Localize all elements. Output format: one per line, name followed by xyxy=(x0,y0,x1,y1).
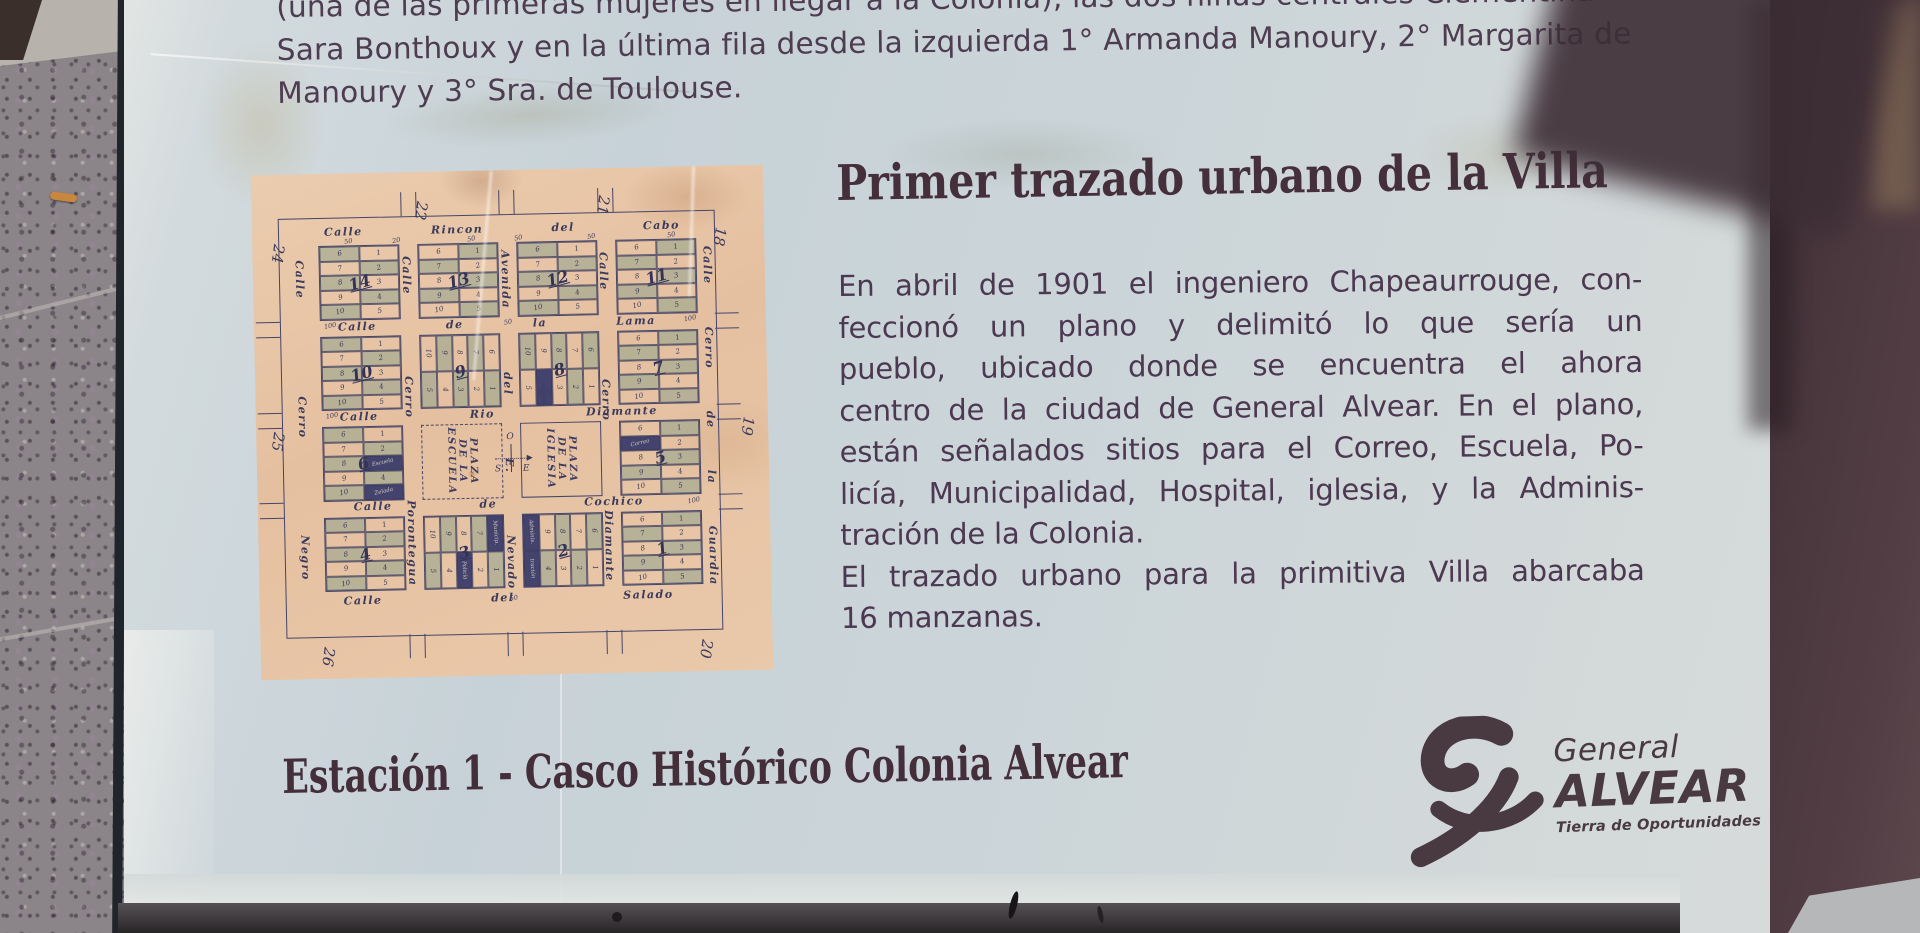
map-lot: 10 xyxy=(424,516,441,553)
lot-number: 7 xyxy=(571,348,579,353)
street-mouth xyxy=(498,190,514,214)
lot-number: 10 xyxy=(634,391,645,401)
lot-number: 6 xyxy=(633,243,639,252)
map-lot: 1 xyxy=(484,370,501,407)
map-lot: 6 xyxy=(618,330,658,345)
map-lot: 7 xyxy=(471,515,488,552)
lot-number: 1 xyxy=(379,430,385,439)
lot-number: 7 xyxy=(635,348,641,357)
street-word: de xyxy=(446,318,464,331)
lot-number: 9 xyxy=(640,558,646,567)
map-lot: 10 xyxy=(518,300,558,315)
lot-number: 8 xyxy=(436,276,442,285)
dirt-smudge xyxy=(612,912,622,922)
map-lot: 10 xyxy=(326,576,366,591)
street-word: Calle xyxy=(596,252,610,291)
lot-number: 2 xyxy=(673,257,679,266)
pavement-joint xyxy=(0,283,132,321)
lot-number: 10 xyxy=(428,530,437,539)
street-mouth xyxy=(719,493,743,509)
street-word: Calle xyxy=(293,260,307,299)
cigarette-butt xyxy=(50,191,78,203)
map-lot: 5 xyxy=(663,569,703,584)
map-lot: Zelada xyxy=(364,484,404,499)
lot-number: 8 xyxy=(634,272,640,281)
lot-number: 6 xyxy=(590,528,598,533)
body-line: 16 manzanas. xyxy=(841,591,1645,640)
lot-number: 2 xyxy=(677,438,683,447)
map-lot: 9 xyxy=(518,286,558,301)
lot-number: 4 xyxy=(378,383,384,392)
lot-landmark-label: Zelada xyxy=(374,487,394,497)
lot-number: 8 xyxy=(342,550,348,559)
lot-number: 2 xyxy=(679,528,685,537)
map-lot: tración xyxy=(524,550,541,587)
map-lot: 4 xyxy=(440,552,457,589)
map-lot: 3 xyxy=(458,272,498,287)
lot-number: 6 xyxy=(639,515,645,524)
lot-number: 8 xyxy=(340,459,346,468)
lot-number: 1 xyxy=(377,339,383,348)
lot-number: 5 xyxy=(676,391,682,400)
map-lot: 8 xyxy=(621,450,661,465)
map-lot: 8 xyxy=(617,269,657,284)
street-mouth xyxy=(256,322,280,338)
lot-number: 8 xyxy=(636,363,642,372)
lot-number: 2 xyxy=(476,567,484,572)
map-lot: 7 xyxy=(323,442,363,457)
street-word: la xyxy=(705,470,718,485)
lot-number: 7 xyxy=(340,445,346,454)
map-lot: 5 xyxy=(661,478,701,493)
body-text: En abril de 1901 el ingeniero Chapeaurro… xyxy=(838,259,1645,640)
lot-number: 2 xyxy=(378,354,384,363)
map-lot: 3 xyxy=(555,550,572,587)
lot-number: 4 xyxy=(679,557,685,566)
section-number: 20 xyxy=(696,638,716,659)
map-lot: 1 xyxy=(557,241,597,256)
lot-number: 1 xyxy=(676,423,682,432)
lot-number: 10 xyxy=(341,578,352,588)
street-word: Negro xyxy=(298,535,312,581)
map-lot: 3 xyxy=(551,369,568,406)
dimension-label: 50 xyxy=(586,232,596,241)
lot-number: 3 xyxy=(679,543,685,552)
lot-number: 1 xyxy=(475,247,481,256)
lot-number: 4 xyxy=(382,564,388,573)
plaque-bottom-edge xyxy=(124,874,1680,906)
map-lot: 1 xyxy=(363,426,403,441)
body-line: feccionó un plano y delimitó lo que serí… xyxy=(838,300,1642,349)
street-word: de xyxy=(479,497,497,510)
lot-number: 3 xyxy=(376,278,382,287)
map-lot: 10 xyxy=(419,302,459,317)
street-word: Calle xyxy=(344,594,383,608)
map-lot: 6 xyxy=(418,244,458,259)
lot-number: 8 xyxy=(337,278,343,287)
map-lot: 9 xyxy=(623,555,663,570)
lot-number: 3 xyxy=(574,273,580,282)
map-lot: 3 xyxy=(359,274,399,289)
body-line: pueblo, ubicado donde se encuentra el ah… xyxy=(839,342,1643,391)
logo-texts: General ALVEAR Tierra de Oportunidades xyxy=(1553,726,1762,836)
lot-number: 1 xyxy=(492,567,500,572)
lot-number: 5 xyxy=(429,568,437,573)
section-number: 19 xyxy=(737,415,757,436)
lot-number: 3 xyxy=(382,549,388,558)
map-lot: 8 xyxy=(326,547,366,562)
map-lot: 2 xyxy=(468,370,485,407)
map-lot: 9 xyxy=(619,374,659,389)
lot-number: 4 xyxy=(677,467,683,476)
lot-number: 9 xyxy=(636,377,642,386)
map-lot: 4 xyxy=(659,373,699,388)
map-lot: 9 xyxy=(621,464,661,479)
street-word: del xyxy=(501,372,514,396)
map-lot: 8 xyxy=(623,540,663,555)
map-lot: Correo xyxy=(620,435,660,450)
lot-number: 10 xyxy=(337,397,348,407)
lot-number: 4 xyxy=(673,286,679,295)
lot-number: 2 xyxy=(376,263,382,272)
map-lot: 6 xyxy=(483,334,500,371)
body-line: licía, Municipalidad, Hospital, iglesia,… xyxy=(840,466,1644,515)
lot-number: 8 xyxy=(637,453,643,462)
map-lot: 5 xyxy=(558,299,598,314)
dimension-label: 50 xyxy=(343,237,353,246)
map-lot: 7 xyxy=(622,526,662,541)
map-lot: 5 xyxy=(362,394,402,409)
lot-landmark-label: Policía xyxy=(461,560,468,579)
map-lot: 8 xyxy=(619,359,659,374)
street-word: Nevado xyxy=(504,535,518,590)
map-lot: 6 xyxy=(323,427,363,442)
map-lot: 8 xyxy=(419,273,459,288)
photo-of-plaque: (una de las primeras mujeres en llegar a… xyxy=(0,0,1920,933)
map-lot: 1 xyxy=(661,511,701,526)
lot-number: 4 xyxy=(376,292,382,301)
map-block: 109876543219 xyxy=(419,333,502,409)
lot-number: 9 xyxy=(440,351,448,356)
stone-pavement xyxy=(0,0,128,933)
dimension-label: 50 xyxy=(666,230,676,239)
map-lot: 2 xyxy=(658,344,698,359)
map-lot: 8 xyxy=(555,513,572,550)
dimension-label: 50 xyxy=(503,317,513,326)
lot-number: 5 xyxy=(679,572,685,581)
lot-number: 2 xyxy=(475,261,481,270)
lot-number: 1 xyxy=(674,333,680,342)
street-word: Lama xyxy=(616,314,656,328)
map-lot: 7 xyxy=(617,254,657,269)
map-lot: 9 xyxy=(436,335,453,372)
map-lot: 9 xyxy=(322,380,362,395)
lot-number: 2 xyxy=(571,384,579,389)
map-lot: 8 xyxy=(452,334,469,371)
street-word: del xyxy=(551,221,575,234)
lot-number: 7 xyxy=(633,258,639,267)
lot-number: 1 xyxy=(678,514,684,523)
map-lot: 2 xyxy=(662,525,702,540)
lot-landmark-label: Escuela xyxy=(372,458,395,469)
body-line: centro de la ciudad de General Alvear. E… xyxy=(839,383,1643,432)
lot-number: 6 xyxy=(336,249,342,258)
street-word: E. xyxy=(503,457,516,472)
map-lot: 7 xyxy=(570,513,587,550)
lot-number: 1 xyxy=(673,242,679,251)
lot-number: 6 xyxy=(487,350,495,355)
street-word: Cerro xyxy=(599,379,613,421)
lot-number: 4 xyxy=(441,387,449,392)
map-lot: 5 xyxy=(366,575,406,590)
map-lot: 7 xyxy=(419,259,459,274)
lot-number: 8 xyxy=(535,274,541,283)
lot-number: 9 xyxy=(339,383,345,392)
lot-number: 2 xyxy=(472,386,480,391)
map-lot: 1 xyxy=(488,551,505,588)
map-lot: 10 xyxy=(617,298,657,313)
map-lot: 4 xyxy=(363,470,403,485)
map-lot: 6 xyxy=(586,513,603,550)
lot-number: 4 xyxy=(380,473,386,482)
lot-number: 2 xyxy=(380,444,386,453)
map-lot: 2 xyxy=(361,350,401,365)
street-word: Calle xyxy=(354,500,393,514)
general-alvear-logo: General ALVEAR Tierra de Oportunidades xyxy=(1390,705,1796,889)
street-word: Calle xyxy=(399,256,413,295)
map-lot: 5 xyxy=(657,297,697,312)
map-lot: 1 xyxy=(364,517,404,532)
lot-number: 10 xyxy=(638,572,649,582)
map-block: 617283941054 xyxy=(324,516,407,592)
lot-number: 9 xyxy=(638,468,644,477)
lot-number: 3 xyxy=(457,386,465,391)
lot-number: 5 xyxy=(382,578,388,587)
map-lot: 4 xyxy=(365,560,405,575)
lot-number: 6 xyxy=(534,245,540,254)
map-lot: 10 xyxy=(320,304,360,319)
lot-number: 8 xyxy=(456,350,464,355)
map-lot: 3 xyxy=(453,371,470,408)
map-lot: 9 xyxy=(419,288,459,303)
lot-number: 9 xyxy=(634,287,640,296)
map-lot: 2 xyxy=(567,368,584,405)
map-block: 617283941051 xyxy=(621,510,704,586)
map-lot: 1 xyxy=(659,420,699,435)
body-line: El trazado urbano para la primitiva Vill… xyxy=(841,549,1645,598)
lot-number: 1 xyxy=(587,384,595,389)
lot-number: 10 xyxy=(632,301,643,311)
lot-number: 3 xyxy=(378,368,384,377)
body-line: tración de la Colonia. xyxy=(840,508,1644,557)
map-block: 6172839410512 xyxy=(516,240,599,316)
map-block: 6172839410510 xyxy=(320,335,403,411)
body-line: están señalados sitios para el Correo, E… xyxy=(839,425,1643,474)
body-line: En abril de 1901 el ingeniero Chapeaurro… xyxy=(838,259,1642,308)
lot-number: 6 xyxy=(340,430,346,439)
map-lot: 5 xyxy=(360,303,400,318)
map-lot: 3 xyxy=(365,546,405,561)
compass-arrow xyxy=(527,455,533,461)
map-block: 10987653218 xyxy=(518,331,601,407)
lot-number: 3 xyxy=(556,384,564,389)
section-number: 18 xyxy=(709,226,729,247)
map-lot: 5 xyxy=(421,371,438,408)
lot-number: 8 xyxy=(339,369,345,378)
historic-town-map: 6172839410514617283941051361728394105126… xyxy=(251,165,773,681)
lot-landmark-label: Correo xyxy=(630,438,650,448)
map-block: 6172839410513 xyxy=(417,242,500,318)
lot-number: 6 xyxy=(435,247,441,256)
map-lot: 9 xyxy=(326,561,366,576)
lot-number: 7 xyxy=(336,264,342,273)
map-lot: 7 xyxy=(325,532,365,547)
street-mouth xyxy=(717,403,741,419)
lot-number: 10 xyxy=(434,305,445,315)
map-lot: Adminis. xyxy=(523,514,540,551)
lot-number: 4 xyxy=(445,568,453,573)
dimension-label: 20 xyxy=(391,236,401,245)
map-lot: 9 xyxy=(535,333,552,370)
lot-number: 5 xyxy=(377,307,383,316)
map-lot: 3 xyxy=(662,540,702,555)
map-lot: 3 xyxy=(658,359,698,374)
lot-number: 9 xyxy=(341,474,347,483)
lot-number: 5 xyxy=(524,385,532,390)
map-lot: 3 xyxy=(557,270,597,285)
map-lot: 2 xyxy=(472,551,489,588)
lot-number: 6 xyxy=(586,347,594,352)
map-lot: 5 xyxy=(659,388,699,403)
lot-landmark-label: tración xyxy=(528,558,535,578)
street-word: Cerro xyxy=(295,396,309,438)
map-block: 6172839410511 xyxy=(615,238,698,314)
street-word: Calle xyxy=(340,410,379,424)
lot-number: 9 xyxy=(535,289,541,298)
lot-number: 9 xyxy=(444,531,452,536)
street-word: Cerro xyxy=(702,326,716,368)
lot-number: 2 xyxy=(575,565,583,570)
lot-number: 7 xyxy=(639,529,645,538)
lot-number: 4 xyxy=(544,566,552,571)
lot-number: 8 xyxy=(559,529,567,534)
lot-number: 3 xyxy=(675,362,681,371)
street-word: Calle xyxy=(324,225,363,239)
map-lot: 10 xyxy=(621,479,661,494)
street-word: Rio xyxy=(470,407,495,421)
street-mouth xyxy=(258,412,282,428)
lot-number: 8 xyxy=(555,348,563,353)
section-number: 21 xyxy=(593,194,613,215)
street-word: Guardia xyxy=(706,526,720,586)
dimension-label: 50 xyxy=(466,234,476,243)
street-word: Salado xyxy=(623,588,674,602)
map-lot: 2 xyxy=(557,256,597,271)
photo-caption-paragraph: (una de las primeras mujeres en llegar a… xyxy=(276,0,1669,115)
map-lot: 2 xyxy=(359,260,399,275)
map-lot: 1 xyxy=(359,245,399,260)
map-lot: 3 xyxy=(660,449,700,464)
lot-number: 7 xyxy=(435,262,441,271)
map-lot: 7 xyxy=(518,257,558,272)
lot-number: 6 xyxy=(635,334,641,343)
map-lot: 9 xyxy=(324,471,364,486)
map-lot: 7 xyxy=(567,332,584,369)
street-word: Calle xyxy=(338,320,377,334)
map-lot: 10 xyxy=(623,569,663,584)
lot-number: 2 xyxy=(675,347,681,356)
map-lot: Municip. xyxy=(487,515,504,552)
map-lot: 6 xyxy=(616,240,656,255)
lot-number: 2 xyxy=(382,535,388,544)
map-lot: 2 xyxy=(660,435,700,450)
lot-number: 1 xyxy=(376,249,382,258)
lot-number: 10 xyxy=(335,307,346,317)
map-lot: 6 xyxy=(517,242,557,257)
lot-number: 3 xyxy=(559,565,567,570)
lot-number: 5 xyxy=(425,387,433,392)
map-lot: 3 xyxy=(361,365,401,380)
lot-number: 7 xyxy=(574,529,582,534)
map-lot: 6 xyxy=(319,246,359,261)
map-lot: 8 xyxy=(518,271,558,286)
map-lot: 10 xyxy=(619,388,659,403)
alvear-logo-mark-icon xyxy=(1390,714,1553,869)
lot-number: 10 xyxy=(424,349,433,358)
lot-number: 9 xyxy=(539,348,547,353)
map-lot: 4 xyxy=(360,289,400,304)
map-lot: 9 xyxy=(320,290,360,305)
map-lot: 4 xyxy=(558,285,598,300)
map-lot: 2 xyxy=(571,549,588,586)
map-lot: 2 xyxy=(365,531,405,546)
map-lot: 6 xyxy=(321,337,361,352)
map-lot: 6 xyxy=(325,518,365,533)
map-lot: 4 xyxy=(539,550,556,587)
plaza-label: PLAZA DE LA ESCUELA xyxy=(422,424,503,498)
map-lot: 1 xyxy=(458,243,498,258)
street-mouth xyxy=(260,503,284,519)
lot-number: 10 xyxy=(339,488,350,498)
map-lot: 6 xyxy=(582,332,599,369)
lot-number: 1 xyxy=(591,565,599,570)
lot-number: 9 xyxy=(343,564,349,573)
map-lot: Escuela xyxy=(363,455,403,470)
lot-number: 5 xyxy=(575,302,581,311)
map-lot: 10 xyxy=(322,395,362,410)
lot-number: 4 xyxy=(574,288,580,297)
map-block: 6172839410514 xyxy=(318,244,401,320)
map-lot: 6 xyxy=(620,421,660,436)
ground-shadow xyxy=(118,903,1680,933)
lot-number: 8 xyxy=(639,544,645,553)
map-lot: 10 xyxy=(420,335,437,372)
map-block: 61728Escuela9410Zelada6 xyxy=(322,425,405,501)
street-word: Diamante xyxy=(586,404,658,418)
map-lot: 1 xyxy=(361,336,401,351)
lot-number: 1 xyxy=(488,386,496,391)
lot-number: 2 xyxy=(574,259,580,268)
map-block: 61Correo283941055 xyxy=(619,419,702,495)
street-word: Rincon xyxy=(431,223,484,237)
lot-number: 6 xyxy=(342,521,348,530)
section-number: 25 xyxy=(268,431,288,452)
map-lot: 9 xyxy=(617,283,657,298)
map-lot: 2 xyxy=(363,441,403,456)
map-lot: 8 xyxy=(324,456,364,471)
street-mouth xyxy=(715,312,739,328)
dimension-label: 50 xyxy=(513,233,523,242)
